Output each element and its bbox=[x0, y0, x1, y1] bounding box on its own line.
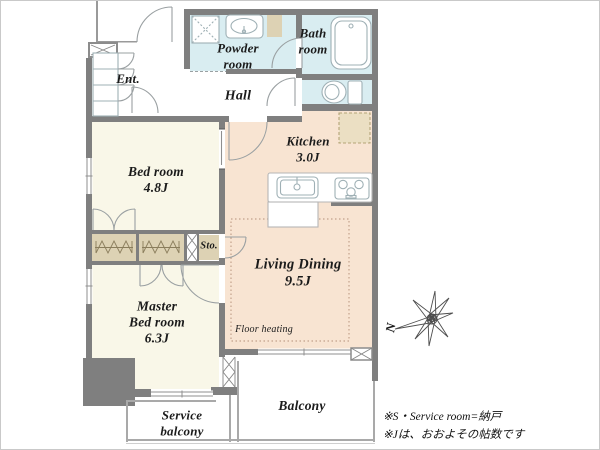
toilet-icon bbox=[322, 81, 362, 104]
master-door bbox=[181, 265, 219, 303]
balcony-shaft-icon bbox=[351, 348, 372, 360]
bath-door bbox=[272, 38, 302, 68]
fridge-space-icon bbox=[339, 113, 370, 143]
floor-plan: N Powderroom Bathroom Ent. Hall Kitchen3… bbox=[0, 0, 600, 450]
footnote-service-room: ※S・Service room=納戸 bbox=[383, 409, 524, 427]
bedroom-window bbox=[86, 158, 93, 194]
washer-pan-icon bbox=[192, 16, 219, 43]
kitchen-sink-icon bbox=[277, 177, 318, 198]
storage-door bbox=[225, 237, 246, 258]
powder-room-label: Powderroom bbox=[217, 40, 259, 71]
bedroom-closet-doors bbox=[93, 209, 135, 230]
footnote-jo-size: ※Jは、おおよその帖数です bbox=[383, 427, 524, 445]
bath-room-label: Bathroom bbox=[299, 25, 328, 56]
stove-icon bbox=[335, 178, 369, 199]
balcony-label: Balcony bbox=[278, 398, 325, 414]
bathtub-icon bbox=[331, 17, 371, 69]
compass-icon: N bbox=[382, 291, 453, 346]
entry-door bbox=[137, 7, 172, 42]
master-closet-doors bbox=[140, 265, 183, 286]
powder-sink-icon bbox=[226, 15, 263, 38]
hall-label: Hall bbox=[225, 89, 251, 106]
pipe-space-icon bbox=[187, 234, 197, 261]
master-bottom-window bbox=[151, 391, 213, 398]
master-side-window bbox=[86, 269, 93, 304]
plan-linework: N bbox=[1, 1, 600, 450]
north-label: N bbox=[382, 321, 399, 334]
shoe-cabinet-icon bbox=[93, 53, 118, 116]
master-bedroom-label: Master Bed room 6.3J bbox=[129, 299, 185, 348]
corner-hatch-strip bbox=[223, 357, 235, 387]
storage-label: Sto. bbox=[200, 241, 217, 254]
floor-heating-label: Floor heating bbox=[235, 324, 293, 336]
bedroom-sliding-door bbox=[219, 129, 225, 169]
footnotes: ※S・Service room=納戸 ※Jは、おおよその帖数です bbox=[383, 409, 524, 445]
entrance-label: Ent. bbox=[116, 71, 140, 87]
toilet-door bbox=[267, 78, 295, 106]
kitchen-label: Kitchen3.0J bbox=[286, 133, 329, 164]
living-dining-label: Living Dining9.5J bbox=[255, 257, 342, 292]
service-balcony-label: Servicebalcony bbox=[160, 407, 203, 438]
balcony-sliding-window bbox=[258, 349, 351, 356]
hall-living-door bbox=[229, 122, 267, 160]
bedroom-label: Bed room4.8J bbox=[128, 164, 184, 196]
